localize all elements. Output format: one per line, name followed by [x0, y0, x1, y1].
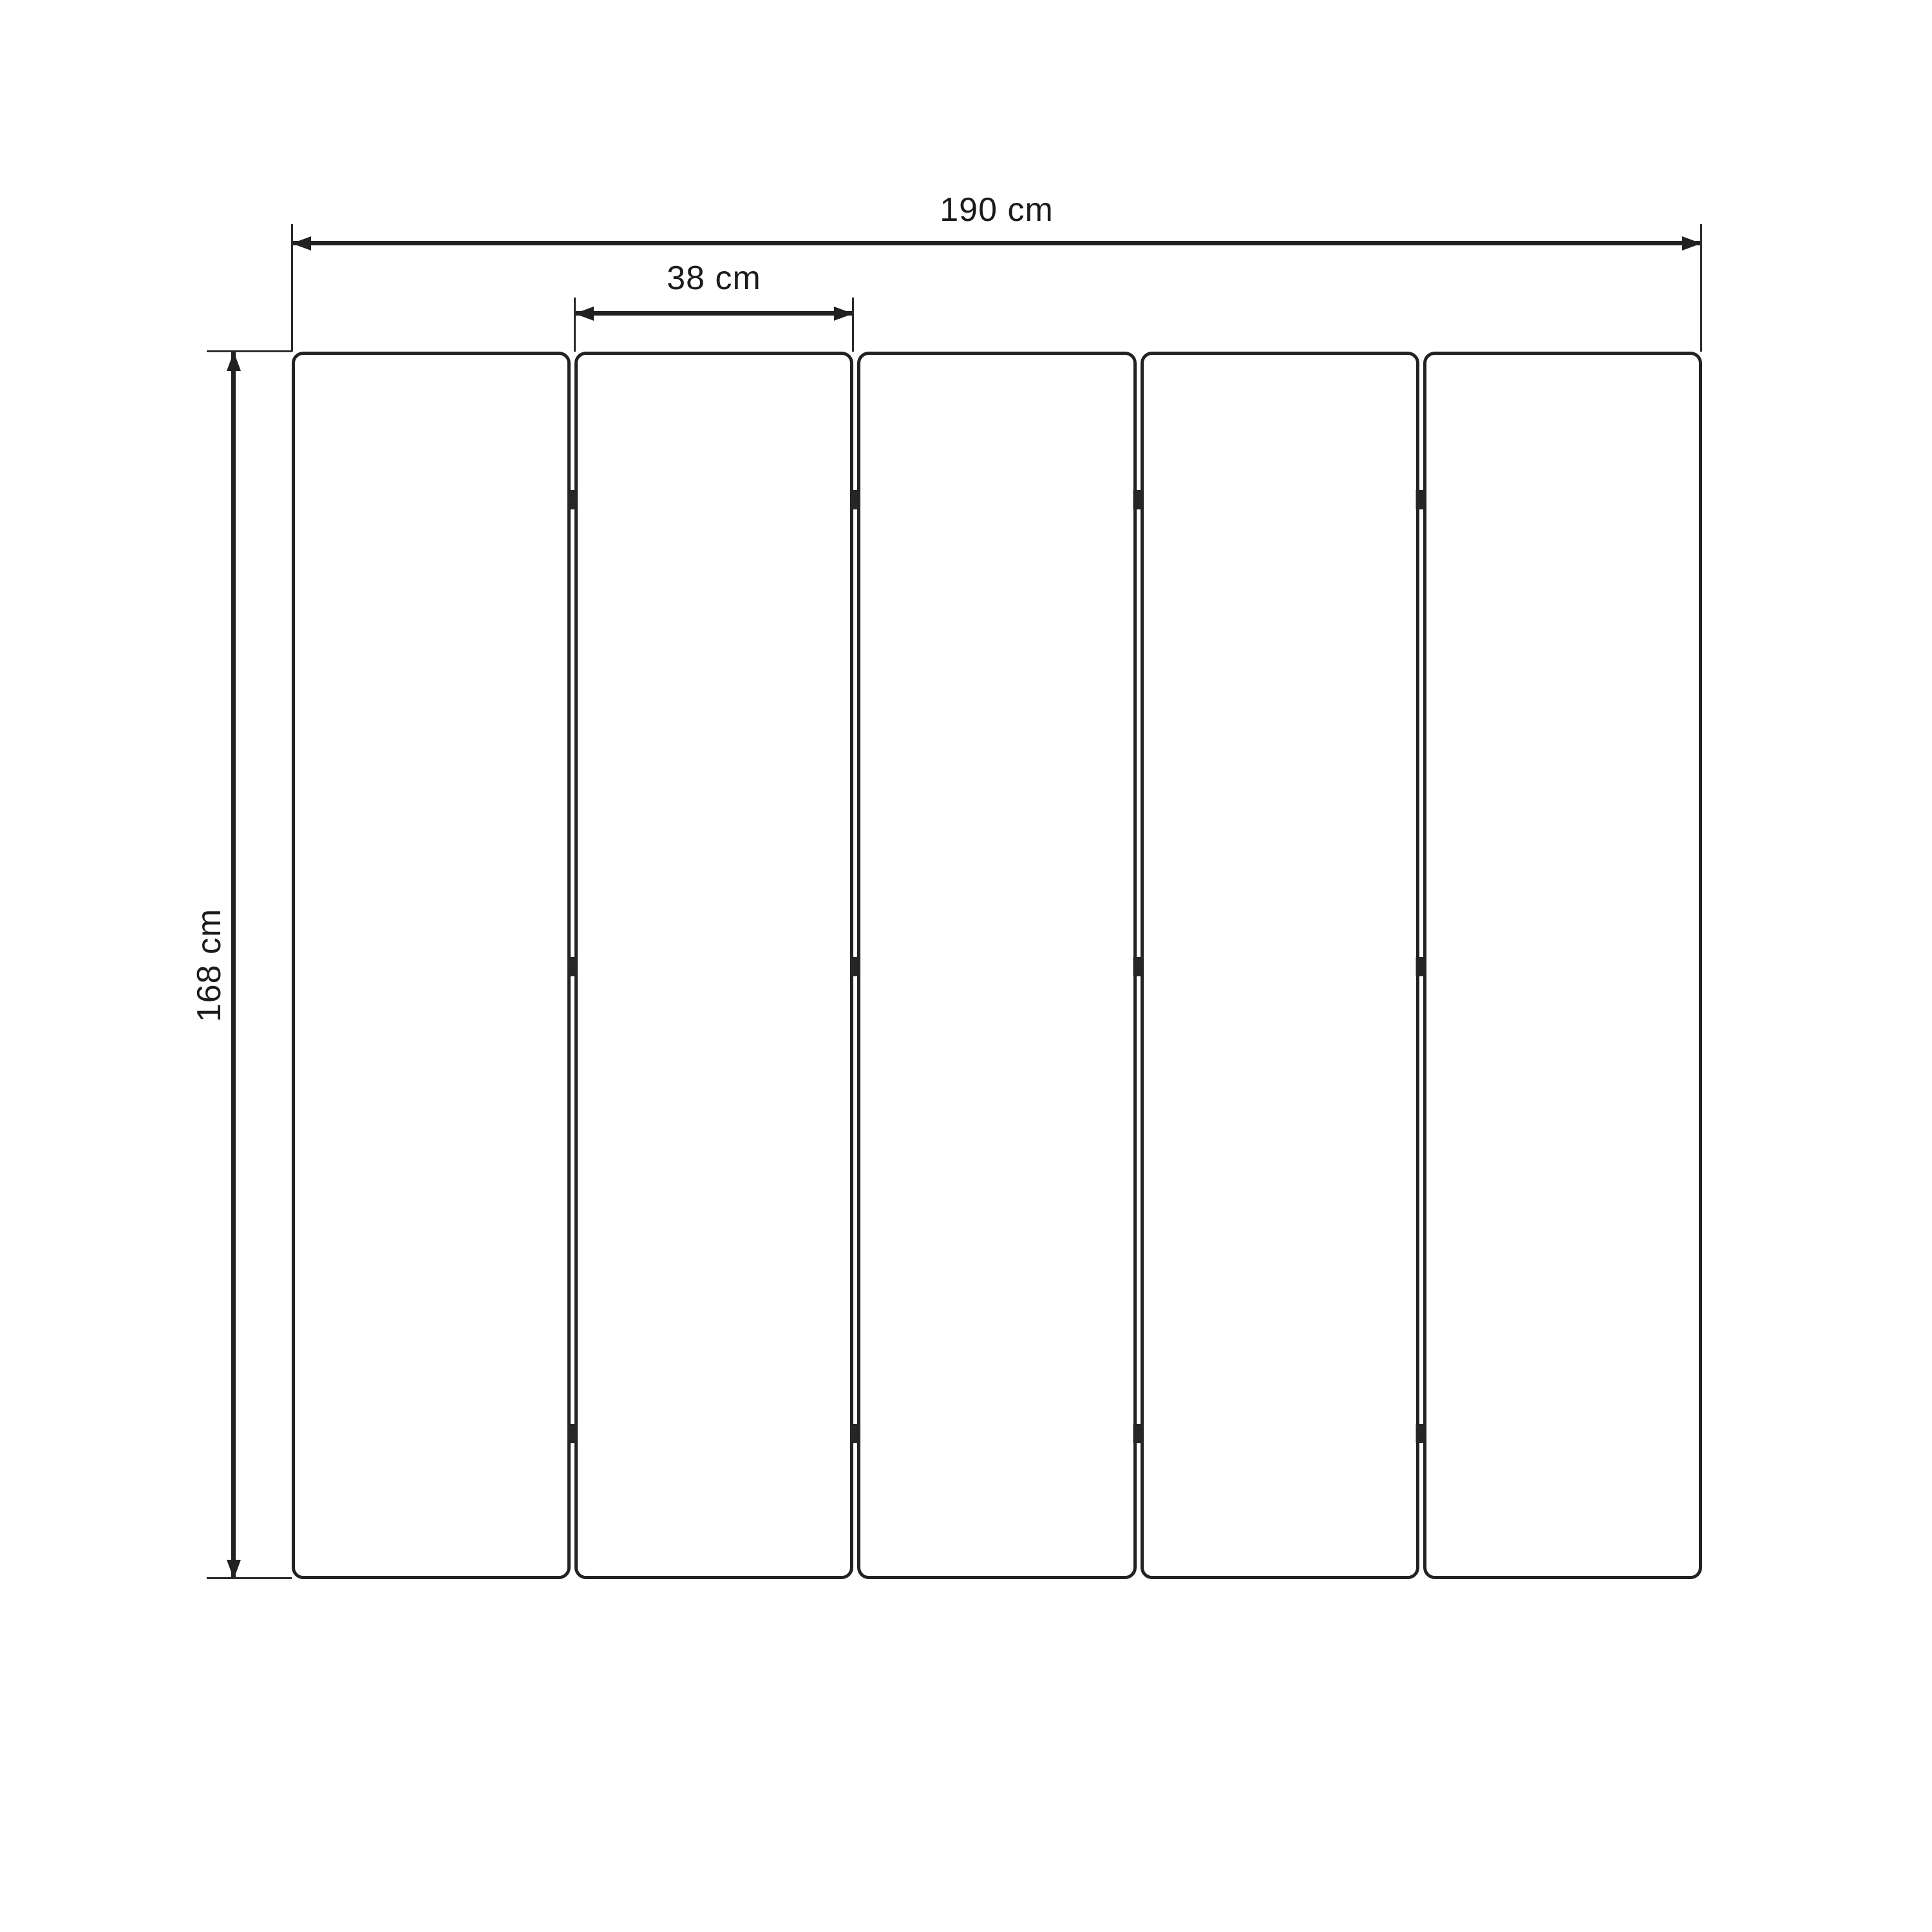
- extension-line-total-right: [1700, 224, 1702, 352]
- total-width-label: 190 cm: [292, 193, 1701, 227]
- panel-1: [292, 352, 571, 1579]
- extension-line-panel-right: [852, 298, 854, 352]
- hinge: [851, 490, 860, 509]
- panel-width-dimension-line: [574, 311, 853, 316]
- arrowhead-right-icon: [834, 307, 853, 321]
- extension-line-panel-left: [574, 298, 576, 352]
- arrowhead-left-icon: [292, 236, 311, 251]
- arrowhead-left-icon: [574, 307, 594, 321]
- extension-line-total-left: [291, 224, 293, 352]
- panel-4: [1141, 352, 1419, 1579]
- hinge: [568, 490, 578, 509]
- hinge: [568, 957, 578, 976]
- hinge: [1416, 1424, 1426, 1443]
- arrowhead-right-icon: [1682, 236, 1701, 251]
- hinge: [568, 1424, 578, 1443]
- hinge: [1133, 957, 1143, 976]
- hinge: [1133, 490, 1143, 509]
- height-label: 168 cm: [193, 909, 226, 1023]
- arrowhead-up-icon: [227, 352, 241, 371]
- height-dimension-line: [231, 352, 236, 1579]
- extension-line-height-bottom: [207, 1577, 292, 1579]
- hinge: [851, 957, 860, 976]
- hinge: [1416, 490, 1426, 509]
- extension-line-height-top: [207, 350, 292, 352]
- panel-5: [1423, 352, 1702, 1579]
- panel-2: [574, 352, 853, 1579]
- panel-width-label: 38 cm: [574, 261, 853, 295]
- total-width-dimension-line: [292, 241, 1701, 245]
- hinge: [1416, 957, 1426, 976]
- arrowhead-down-icon: [227, 1560, 241, 1579]
- hinge: [851, 1424, 860, 1443]
- panel-3: [857, 352, 1136, 1579]
- dimension-diagram: 190 cm 38 cm 168 cm: [0, 0, 1932, 1932]
- panel-group: [292, 352, 1702, 1579]
- hinge: [1133, 1424, 1143, 1443]
